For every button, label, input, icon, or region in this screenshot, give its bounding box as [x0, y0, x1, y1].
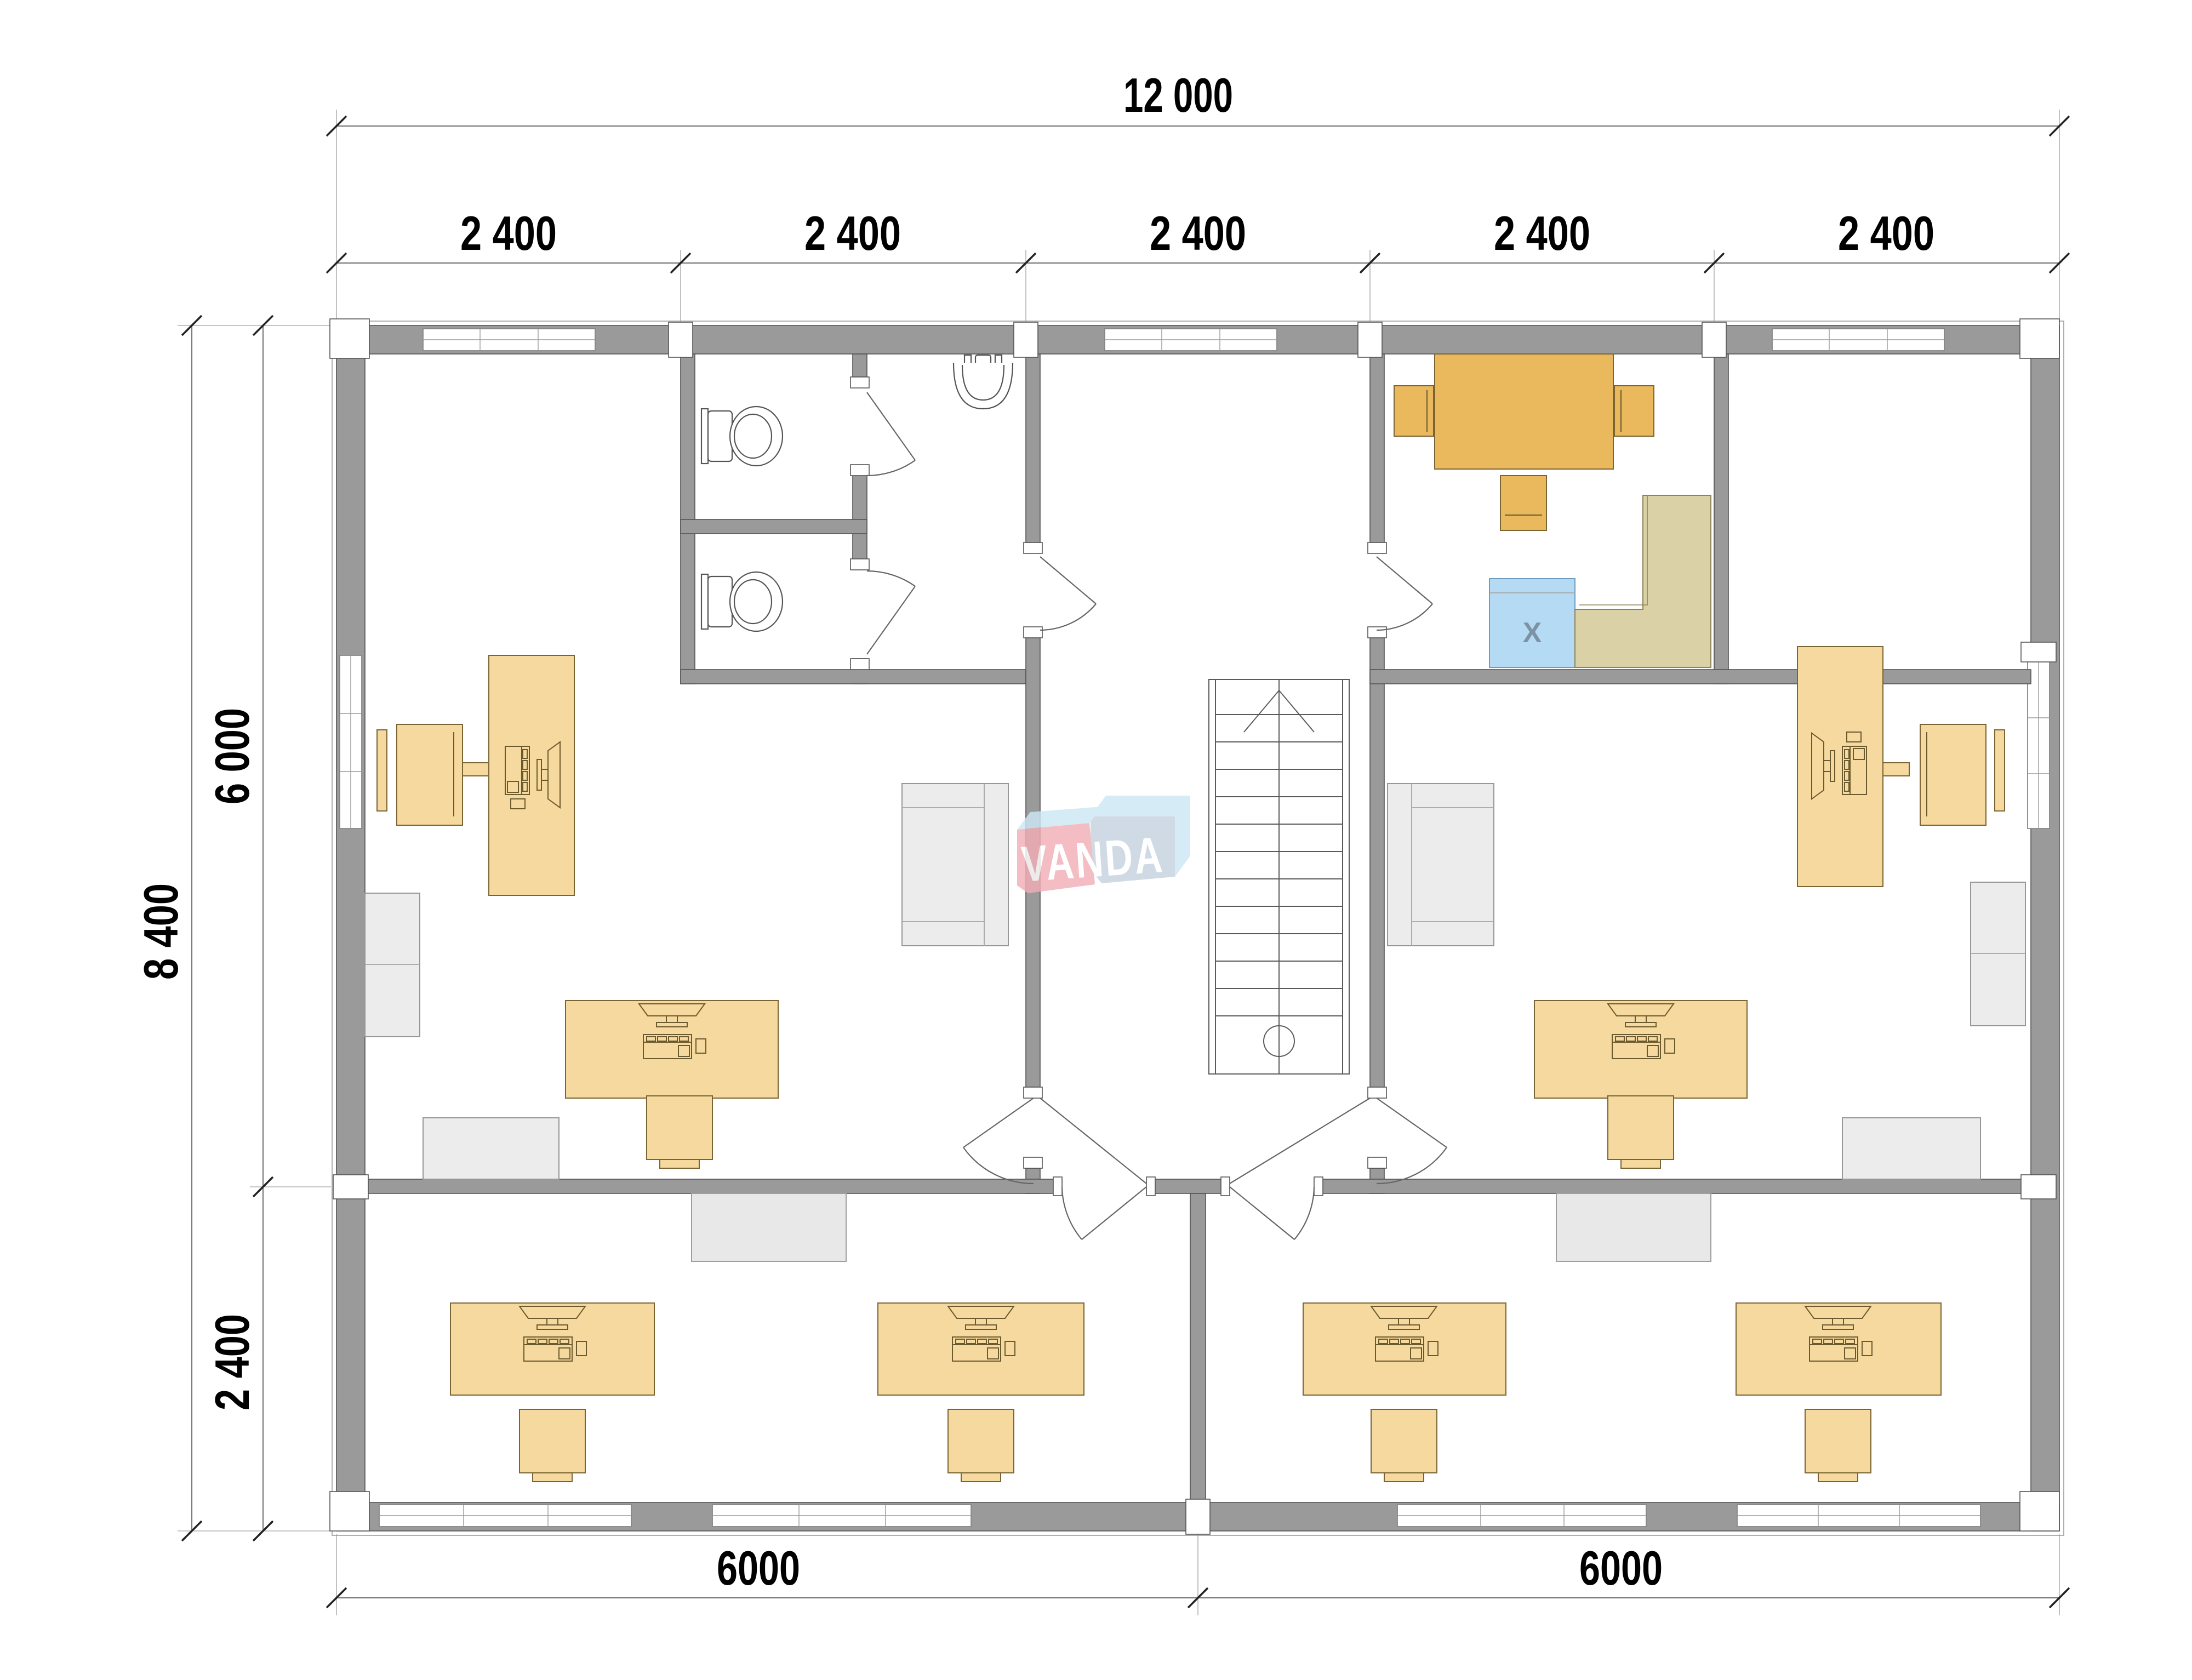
cabinet-separator-right: [1842, 1118, 1980, 1179]
board-bottom-right-room: [1556, 1193, 1711, 1261]
desk-b: [566, 1001, 778, 1098]
board-bottom-left-room: [692, 1193, 846, 1261]
window-bottom-3: [1397, 1505, 1646, 1527]
kitchen-table: [1435, 354, 1613, 469]
window-bottom-4: [1737, 1505, 1980, 1527]
dim-top-seg-1: 2 400: [460, 206, 557, 260]
chair-2: [948, 1409, 1014, 1482]
floor-plan-drawing: 12 000 2 400 2 400 2 400 2 400 2 400 8 4…: [0, 0, 2192, 1680]
window-bottom-1: [379, 1505, 631, 1527]
door-left-office: [963, 1098, 1034, 1184]
wall-toilet-mid-a: [853, 354, 867, 377]
wall-kitchen-right: [1714, 354, 1728, 684]
window-left: [340, 655, 362, 828]
door-bottom-right-room: [1230, 1187, 1314, 1239]
left-office: [365, 655, 1008, 1179]
desk-2: [878, 1303, 1084, 1395]
kitchen-room: X: [1394, 354, 1711, 667]
floor-plan-page: 12 000 2 400 2 400 2 400 2 400 2 400 8 4…: [0, 0, 2192, 1680]
dim-top-seg-2: 2 400: [804, 206, 901, 260]
kitchen-chair-bottom: [1500, 476, 1546, 530]
window-right: [2028, 662, 2050, 828]
window-top-3: [1772, 329, 1944, 351]
door-stall-2: [867, 571, 915, 654]
dim-top-seg-4: 2 400: [1494, 206, 1590, 260]
logo-text: VANDA: [1020, 827, 1166, 893]
desk-a: [489, 655, 574, 895]
corner-top-left: [330, 319, 369, 358]
wall-stall-divider: [681, 519, 867, 534]
dim-top-total: 12 000: [1123, 68, 1233, 122]
door-right-office: [1377, 1098, 1447, 1184]
wall-right: [2031, 325, 2059, 1531]
dim-left-upper: 6 000: [205, 708, 259, 804]
dim-bottom-left: 6000: [717, 1541, 800, 1595]
dim-top-seg-3: 2 400: [1150, 206, 1246, 260]
vanda-watermark: VANDA: [1017, 796, 1190, 893]
toilet-1: [701, 407, 783, 466]
corner-bottom-right: [2020, 1492, 2059, 1531]
chair-b: [647, 1096, 712, 1168]
chair-3: [1371, 1409, 1437, 1482]
door-washroom: [1040, 557, 1096, 630]
dim-left-total: 8 400: [134, 883, 188, 980]
desk-4: [1736, 1303, 1941, 1395]
dim-bottom-right: 6000: [1579, 1541, 1663, 1595]
workstation-a-chair: [377, 724, 489, 825]
stairs: [1209, 679, 1349, 1074]
appliance-x-label: X: [1523, 617, 1542, 649]
sofa-left: [902, 784, 1008, 946]
wall-kitchen-bottom: [1370, 670, 2031, 684]
kitchen-counter: [1575, 495, 1711, 667]
desk-3: [1303, 1303, 1506, 1395]
desk-c: [1797, 647, 1883, 887]
chair-1: [520, 1409, 585, 1482]
cabinet-left-wall: [365, 893, 420, 1037]
wall-separator-left: [365, 1179, 1062, 1193]
wall-hall-right-b: [1370, 638, 1384, 1087]
dim-top-seg-5: 2 400: [1838, 206, 1934, 260]
right-office: [1388, 647, 2025, 1179]
kitchen-appliance: X: [1489, 579, 1575, 667]
window-top-1: [423, 329, 595, 351]
door-stall-1: [867, 392, 915, 476]
wall-toilet-bottom: [681, 670, 1026, 684]
toilet-2: [701, 572, 783, 631]
desk-d: [1534, 1001, 1747, 1098]
wall-separator-right: [1314, 1179, 2031, 1193]
corner-top-right: [2020, 319, 2059, 358]
chair-4: [1805, 1409, 1871, 1482]
dim-left-lower: 2 400: [205, 1314, 259, 1410]
kitchen-chair-right: [1614, 386, 1654, 436]
workstation-c-chair: [1883, 724, 2005, 825]
corner-bottom-left: [330, 1492, 369, 1531]
kitchen-chair-left: [1394, 386, 1434, 436]
sofa-right: [1388, 784, 1494, 946]
vestibule-funnel-doors: [1040, 1098, 1370, 1184]
wall-left: [336, 325, 365, 1531]
wall-separator-center: [1146, 1179, 1230, 1193]
cabinet-separator-left: [423, 1118, 559, 1179]
window-bottom-2: [712, 1505, 971, 1527]
door-kitchen: [1377, 557, 1432, 630]
cabinet-right-wall: [1971, 882, 2025, 1026]
window-top-2: [1105, 329, 1277, 351]
chair-d: [1608, 1096, 1674, 1168]
wall-toilet-left: [681, 354, 695, 684]
wall-hall-right-a: [1370, 354, 1384, 542]
wall-hall-left-a: [1026, 354, 1040, 542]
desk-1: [450, 1303, 654, 1395]
door-bottom-left-room: [1062, 1187, 1146, 1239]
sink: [954, 355, 1013, 409]
wall-bottom-center: [1190, 1193, 1206, 1502]
